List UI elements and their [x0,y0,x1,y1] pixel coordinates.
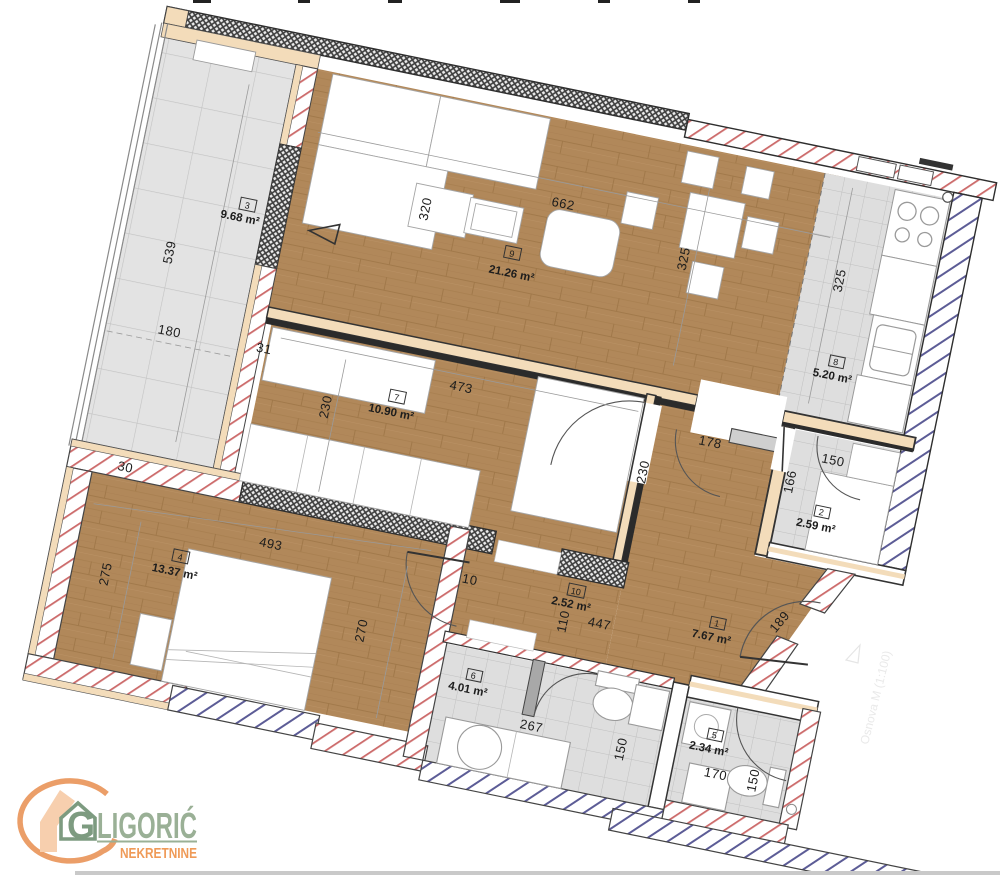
svg-text:10: 10 [570,586,582,598]
svg-text:G: G [67,805,95,847]
svg-text:LIGORIĆ: LIGORIĆ [97,804,197,846]
svg-text:10: 10 [461,571,479,589]
svg-text:30: 30 [116,458,134,476]
svg-text:NEKRETNINE: NEKRETNINE [120,845,197,862]
svg-text:31: 31 [255,339,273,357]
